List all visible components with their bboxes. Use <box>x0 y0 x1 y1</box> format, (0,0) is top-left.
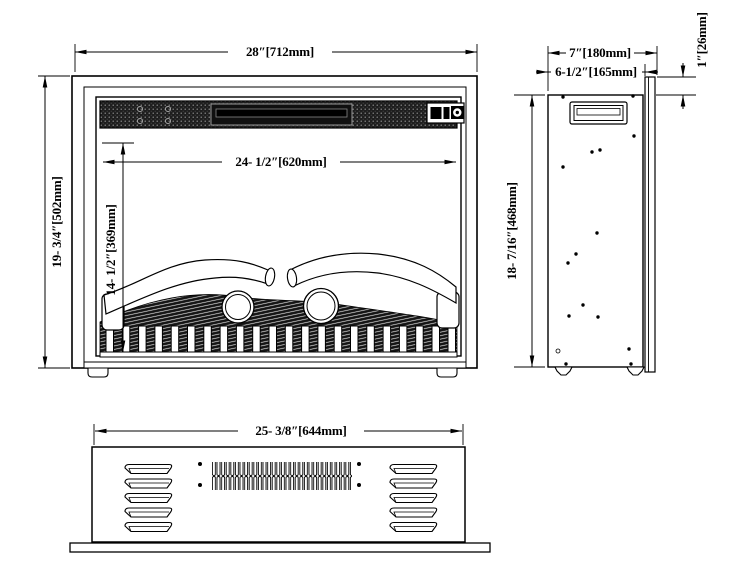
technical-drawing: 28″[712mm] 19- 3/4″[502mm] 24- 1/2″[620m… <box>0 0 735 577</box>
side-foot-right <box>627 367 644 375</box>
front-foot-left <box>88 368 108 377</box>
dim-bottom-width: 25- 3/8″[644mm] <box>94 423 463 445</box>
power-switch-icon <box>431 107 442 119</box>
heater-outlet-slot <box>211 104 352 125</box>
dim-label-front-width: 28″[712mm] <box>246 44 314 59</box>
side-body <box>548 95 643 367</box>
toggle-switch-icon <box>444 107 450 119</box>
dim-flange-offset: 1″[26mm] <box>656 12 709 109</box>
dim-label-side-height: 18- 7/16″[468mm] <box>504 182 519 280</box>
dim-front-width: 28″[712mm] <box>75 44 477 72</box>
dim-label-opening-height: 14- 1/2″[369mm] <box>103 204 118 295</box>
front-foot-right <box>437 368 457 377</box>
control-panel <box>427 103 464 123</box>
dim-label-side-body-depth: 6-1/2″[165mm] <box>555 64 637 79</box>
side-foot-left <box>555 367 572 375</box>
bottom-view <box>70 447 490 552</box>
dim-label-bottom-width: 25- 3/8″[644mm] <box>255 423 346 438</box>
dim-label-front-height: 19- 3/4″[502mm] <box>49 176 64 267</box>
side-view <box>548 77 655 375</box>
drawing-canvas: 28″[712mm] 19- 3/4″[502mm] 24- 1/2″[620m… <box>0 0 735 577</box>
dim-label-opening-width: 24- 1/2″[620mm] <box>235 154 326 169</box>
dim-label-side-depth: 7″[180mm] <box>569 45 631 60</box>
bottom-center-grille <box>212 462 352 490</box>
dim-side-body-depth: 6-1/2″[165mm] <box>536 64 658 79</box>
grate-rail <box>100 352 457 357</box>
front-heater-grille <box>100 101 464 128</box>
dim-label-flange-offset: 1″[26mm] <box>694 12 709 67</box>
dim-side-height: 18- 7/16″[468mm] <box>504 95 545 367</box>
bottom-flange-plate <box>70 543 490 552</box>
dim-front-height: 19- 3/4″[502mm] <box>38 76 70 368</box>
front-view <box>72 76 477 377</box>
side-vent-slot <box>570 102 627 124</box>
side-front-flange <box>645 77 655 372</box>
